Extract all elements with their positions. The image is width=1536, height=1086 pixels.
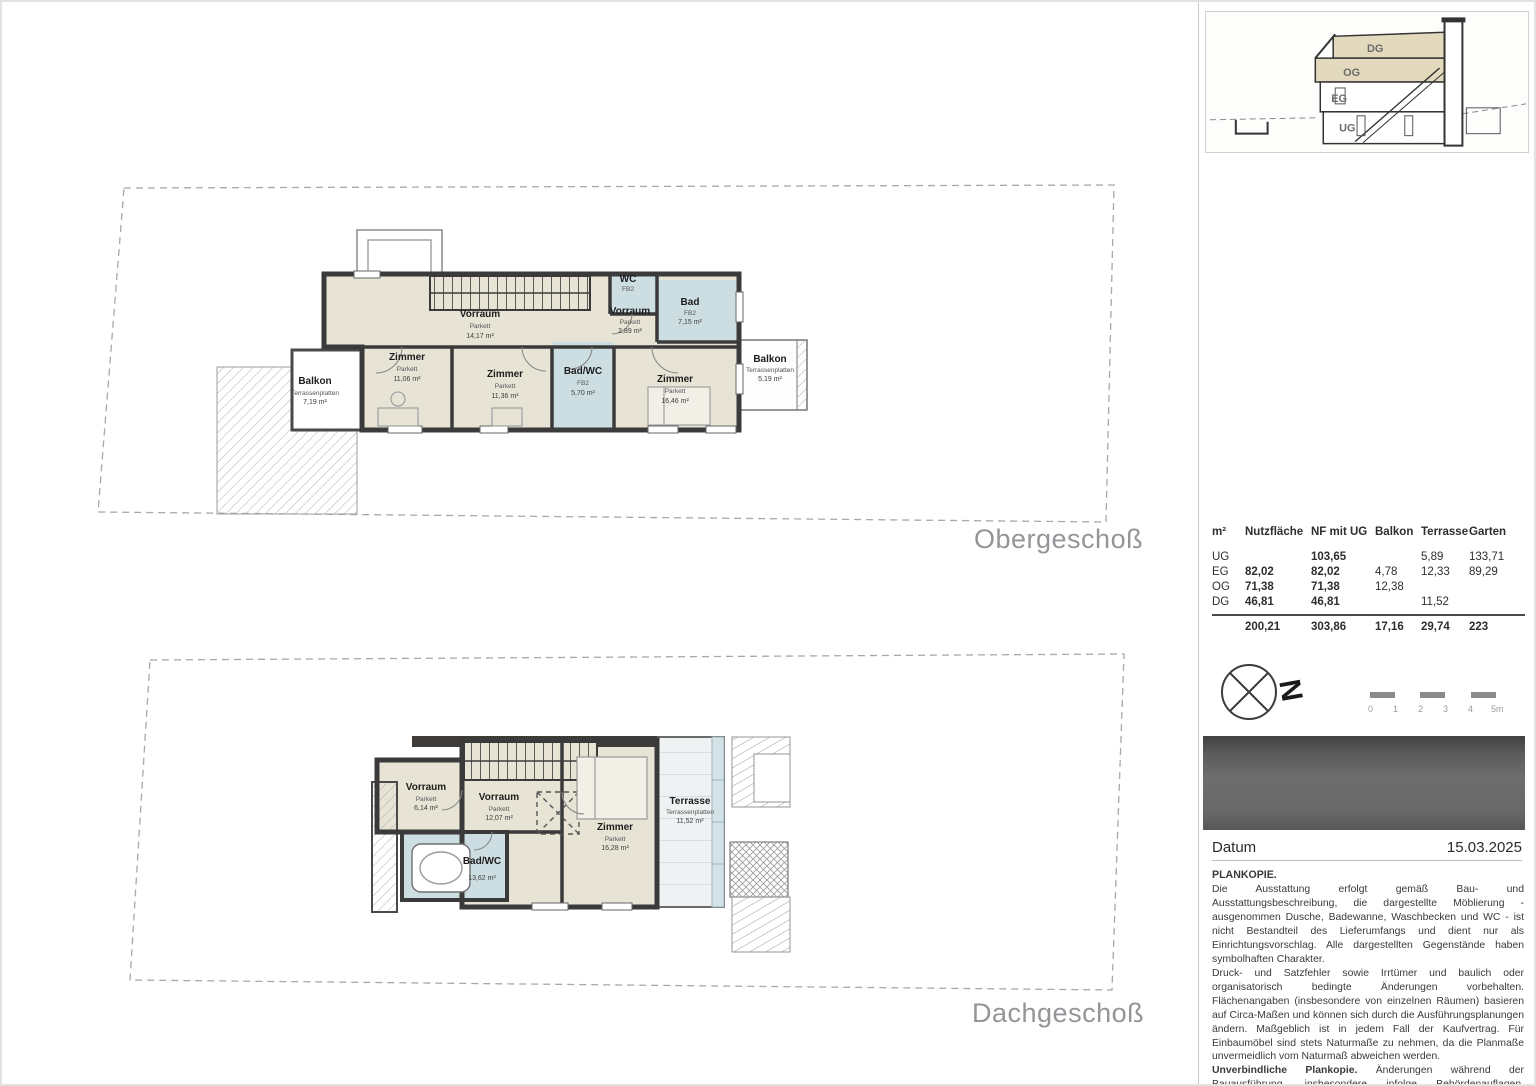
scale-tick: 0 [1368, 704, 1373, 714]
total-cell: 303,86 [1311, 621, 1375, 633]
scale-tick: 2 [1418, 704, 1423, 714]
sidebar: DG OG EG UG m² Nutzfläche NF mit UG Balk… [1198, 2, 1536, 1086]
section-label-dg: DG [1367, 43, 1383, 55]
room-area: 7,19 m² [303, 399, 327, 406]
table-cell: EG [1212, 566, 1245, 578]
compass-and-scalebar: N 0 1 2 3 4 5m [1203, 654, 1533, 730]
table-cell: 133,71 [1469, 551, 1525, 563]
table-cell [1375, 596, 1421, 608]
room-area: 14,17 m² [466, 333, 494, 340]
room-finish: FB2 [684, 310, 696, 317]
obergeschoss-title: Obergeschoß [974, 524, 1143, 555]
scale-tick: 4 [1468, 704, 1473, 714]
stairs-og [430, 276, 590, 310]
north-arrow-icon: N [1222, 665, 1308, 719]
dachgeschoss-title: Dachgeschoß [972, 998, 1144, 1029]
building-section-drawing: DG OG EG UG [1205, 11, 1529, 153]
room-finish: FB2 [622, 286, 634, 293]
room-area: 11,36 m² [491, 393, 519, 400]
room-label: Zimmer [657, 374, 693, 385]
room-area: 6,14 m² [414, 805, 438, 812]
room-label: Balkon [298, 376, 331, 387]
date-label: Datum [1212, 839, 1256, 856]
section-label-og: OG [1343, 67, 1360, 79]
room-area: 12,07 m² [485, 815, 513, 822]
room-finish: Terrassenplatten [666, 809, 714, 816]
room-area: 5,70 m² [571, 390, 595, 397]
room-area: 7,15 m² [678, 319, 702, 326]
legal-heading: PLANKOPIE. [1212, 868, 1524, 882]
room-finish: FB2 [577, 380, 589, 387]
room-area: 11,52 m² [676, 818, 704, 825]
table-cell [1375, 551, 1421, 563]
obergeschoss-floor-plan: Vorraum Parkett 14,17 m² Zimmer Parkett … [92, 172, 1132, 542]
room-label: Zimmer [389, 352, 425, 363]
col-header: NF mit UG [1311, 526, 1375, 548]
col-header: Balkon [1375, 526, 1421, 548]
legal-text: PLANKOPIE. Die Ausstattung erfolgt gemäß… [1212, 868, 1524, 1086]
stone-walls [730, 737, 790, 952]
legal-paragraph: Unverbindliche Plankopie. Änderungen wäh… [1212, 1064, 1524, 1086]
area-table: m² Nutzfläche NF mit UG Balkon Terrasse … [1212, 526, 1528, 633]
col-header: Garten [1469, 526, 1525, 548]
table-cell [1212, 621, 1245, 633]
col-header: m² [1212, 526, 1245, 548]
table-cell [1421, 581, 1469, 593]
date-row: Datum 15.03.2025 [1212, 834, 1522, 861]
table-cell: DG [1212, 596, 1245, 608]
total-cell: 17,16 [1375, 621, 1421, 633]
table-cell: OG [1212, 581, 1245, 593]
room-label: WC [620, 274, 637, 285]
bed-dg [577, 757, 647, 819]
table-cell: 82,02 [1311, 566, 1375, 578]
table-cell [1469, 581, 1525, 593]
table-cell [1469, 596, 1525, 608]
col-header: Nutzfläche [1245, 526, 1311, 548]
bathtub [412, 844, 470, 892]
room-label: Bad/WC [564, 366, 602, 377]
room-label: Vorraum [406, 782, 446, 793]
plan-sheet: Vorraum Parkett 14,17 m² Zimmer Parkett … [0, 0, 1536, 1086]
room-label: Zimmer [487, 369, 523, 380]
room-area: 5,19 m² [758, 376, 782, 383]
room-label: Balkon [753, 354, 786, 365]
table-cell: 103,65 [1311, 551, 1375, 563]
table-cell [1245, 551, 1311, 563]
room-area: 11,06 m² [393, 376, 421, 383]
table-cell: 4,78 [1375, 566, 1421, 578]
room-finish: Parkett [470, 323, 491, 330]
room-label: Vorraum [460, 309, 500, 320]
room-area: 13,62 m² [468, 875, 496, 882]
room-label: Bad/WC [463, 856, 501, 867]
room-finish: Parkett [416, 796, 437, 803]
room-finish: Terrassenplatten [746, 367, 794, 374]
date-value: 15.03.2025 [1447, 839, 1522, 856]
room-finish: Parkett [489, 806, 510, 813]
dormer-outline [357, 230, 442, 274]
total-cell: 223 [1469, 621, 1525, 633]
legal-paragraph: Die Ausstattung erfolgt gemäß Bau- und A… [1212, 883, 1524, 967]
total-cell: 200,21 [1245, 621, 1311, 633]
room-label: Zimmer [597, 822, 633, 833]
room-label: Bad [681, 297, 700, 308]
room-label: Terrasse [670, 796, 711, 807]
room-finish: Parkett [620, 319, 641, 326]
table-cell: UG [1212, 551, 1245, 563]
table-cell: 5,89 [1421, 551, 1469, 563]
legal-paragraph: Druck- und Satzfehler sowie Irrtümer und… [1212, 967, 1524, 1065]
table-cell: 46,81 [1245, 596, 1311, 608]
col-header: Terrasse [1421, 526, 1469, 548]
section-label-eg: EG [1331, 93, 1347, 105]
room-finish: Terrassenplatten [291, 390, 339, 397]
table-cell: 71,38 [1311, 581, 1375, 593]
legal-bold-lead: Unverbindliche Plankopie. [1212, 1065, 1357, 1076]
room-finish: Parkett [397, 366, 418, 373]
scale-bar: 0 1 2 3 4 5m [1368, 692, 1504, 714]
room-area: 16,28 m² [601, 845, 629, 852]
redacted-logo-block [1203, 736, 1525, 830]
room-area: 16,46 m² [661, 398, 689, 405]
scale-tick: 5m [1491, 704, 1504, 714]
room-label: Vorraum [610, 306, 650, 317]
section-label-ug: UG [1339, 123, 1355, 135]
table-cell: 71,38 [1245, 581, 1311, 593]
room-area: 2,89 m² [618, 328, 642, 335]
room-finish: Parkett [605, 836, 626, 843]
room-finish: Parkett [495, 383, 516, 390]
room-finish: Parkett [665, 388, 686, 395]
room-label: Vorraum [479, 792, 519, 803]
table-cell: 12,33 [1421, 566, 1469, 578]
table-cell: 82,02 [1245, 566, 1311, 578]
north-label: N [1272, 677, 1308, 704]
table-cell: 11,52 [1421, 596, 1469, 608]
balkon-right [739, 340, 807, 410]
table-cell: 89,29 [1469, 566, 1525, 578]
total-cell: 29,74 [1421, 621, 1469, 633]
table-cell: 46,81 [1311, 596, 1375, 608]
totals-divider [1212, 614, 1525, 618]
scale-tick: 3 [1443, 704, 1448, 714]
bad-room [657, 280, 737, 342]
dachgeschoss-floor-plan: Vorraum Parkett 6,14 m² Vorraum Parkett … [102, 642, 1162, 1022]
scale-tick: 1 [1393, 704, 1398, 714]
table-cell: 12,38 [1375, 581, 1421, 593]
